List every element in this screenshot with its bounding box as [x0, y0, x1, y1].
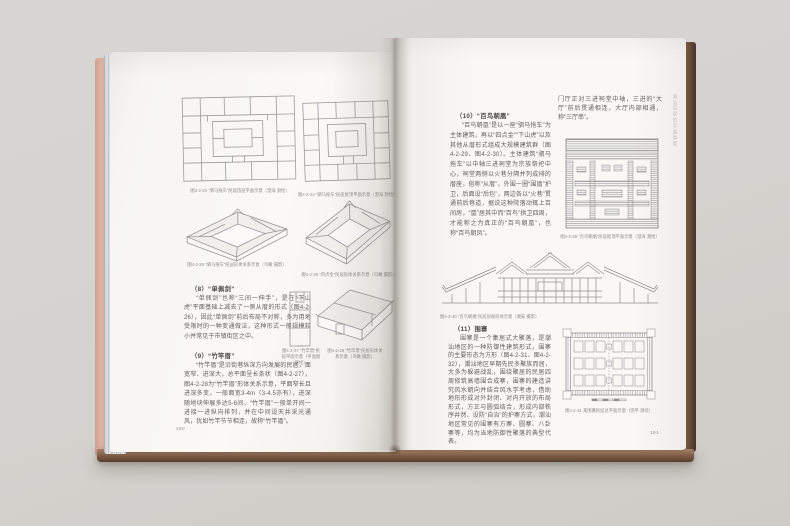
- open-book: 图4-2-23 “驷马拖车”民居首层平面示意（澄海 测绘） 图4-2-24 “驷…: [95, 36, 696, 466]
- section-body-9: “竹竿厝”是沿街巷纵深方向发展的民居，面宽窄、进深大，总平面呈长条状（图4-2-…: [184, 362, 311, 428]
- left-page: 图4-2-23 “驷马拖车”民居首层平面示意（澄海 测绘） 图4-2-24 “驷…: [110, 52, 396, 452]
- page-number-right: 191: [650, 430, 659, 435]
- figure-caption: 图4-2-31 某围寨民居总平面示意（饶平 测绘）: [554, 408, 664, 414]
- strip-plan-figure: [287, 290, 313, 350]
- floor-plan-figure-2: [300, 97, 395, 186]
- compound-plan-figure: [562, 324, 656, 406]
- house-axon-figure: [314, 284, 398, 346]
- right-page: 门厅正对三进祠堂中轴，三进的“大厅”前后贯通相连，大厅内部相通，称“三厅串”。 …: [394, 38, 686, 450]
- figure-caption: 图4-2-23 “驷马拖车”民居首层平面示意（澄海 测绘）: [166, 188, 314, 194]
- figure-caption: 图4-2-25 “驷马拖车”民居形体关系示意（鸟瞰 摄影）: [172, 262, 302, 268]
- roof-plan-figure: [564, 137, 660, 231]
- figure-caption: 图4-2-28 “竹竿厝”民居形体关系示意（鸟瞰 摄影）: [326, 348, 384, 360]
- figure-caption: 图4-2-30 “百鸟朝凰”民居剖视形体示意（潮安 摄影）: [440, 314, 590, 320]
- axonometric-figure-1: [180, 197, 295, 263]
- figure-caption: 图4-2-29 “百鸟朝凰”民居屋顶平面示意（澄海 测绘）: [554, 234, 666, 240]
- section-heading-9: （9）“竹竿厝”: [191, 351, 235, 360]
- continuation-text: 门厅正对三进祠堂中轴，三进的“大厅”前后贯通相连，大厅内部相通，称“三厅串”。: [558, 96, 662, 123]
- figure-caption: 图4-2-26 “四点金”民居形体关系示意（鸟瞰 摄影）: [296, 272, 402, 278]
- section-body-11: 围寨是一个集居式大聚落，是潮汕地区的一种防御性建筑形式，围寨的主要形态为方形（图…: [448, 335, 551, 447]
- axonometric-figure-2: [299, 191, 396, 271]
- section-heading-8: （8）“单佩剑”: [191, 284, 235, 293]
- photo-background: 图4-2-23 “驷马拖车”民居首层平面示意（澄海 测绘） 图4-2-24 “驷…: [0, 0, 790, 526]
- section-drawing-figure: [438, 246, 662, 310]
- section-body-10: “百鸟朝凰”是以一座“驷马拖车”为主体建筑，再以“四点金”“下山虎”以及其他从厝…: [450, 122, 551, 240]
- floor-plan-figure-1: [179, 91, 301, 187]
- running-header-vertical: 潮汕民居的平面类型: [672, 94, 678, 224]
- book-cover-right-edge: [686, 42, 696, 452]
- section-heading-11: （11）围寨: [454, 324, 488, 333]
- page-number-left: 190: [176, 426, 185, 431]
- section-heading-10: （10）“百鸟朝凰”: [456, 111, 510, 120]
- spine-notch: [388, 444, 402, 456]
